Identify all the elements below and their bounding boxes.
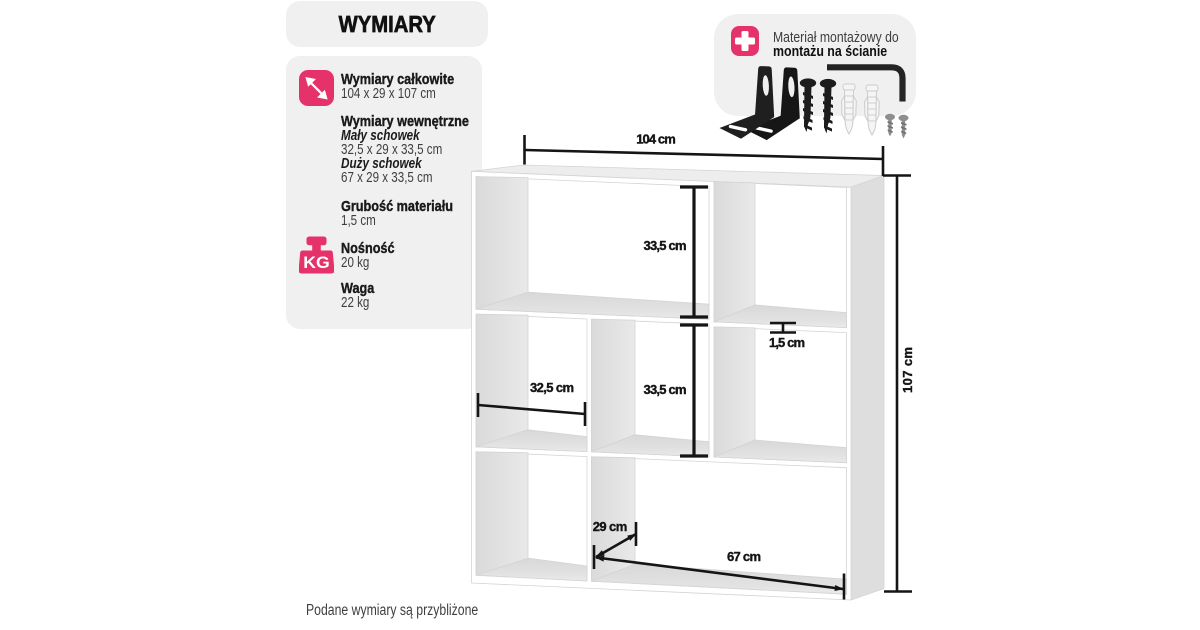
svg-text:67 cm: 67 cm [727, 549, 761, 564]
svg-text:1,5 cm: 1,5 cm [769, 335, 805, 350]
svg-text:104 cm: 104 cm [636, 132, 676, 147]
svg-text:107 cm: 107 cm [900, 347, 915, 393]
svg-text:29 cm: 29 cm [593, 519, 628, 534]
svg-text:33,5 cm: 33,5 cm [644, 382, 687, 397]
svg-text:33,5 cm: 33,5 cm [644, 238, 687, 253]
svg-text:KG: KG [303, 254, 330, 272]
svg-text:32,5 cm: 32,5 cm [530, 380, 574, 395]
